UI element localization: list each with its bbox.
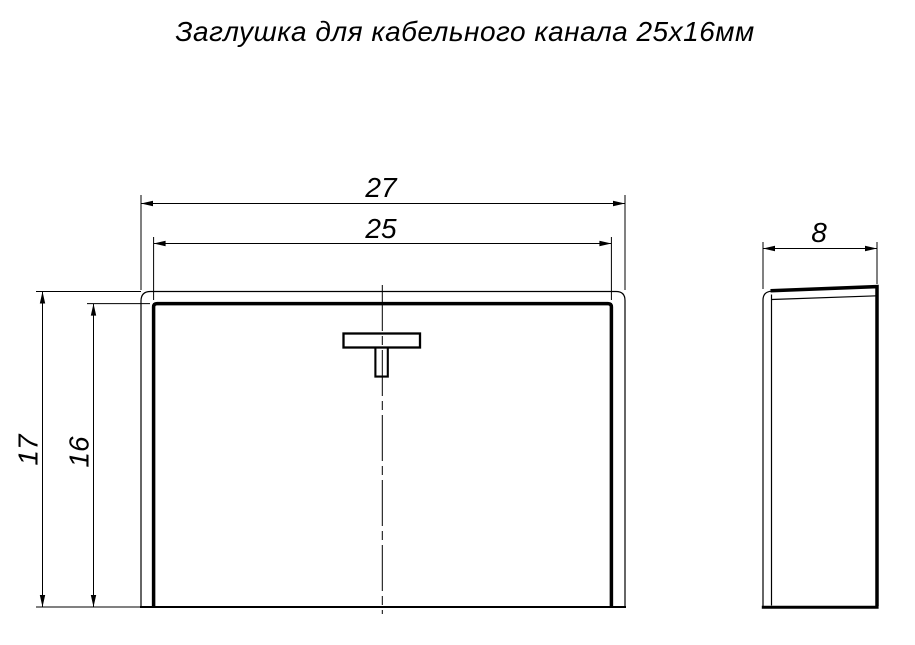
technical-drawing-canvas: 27 25 17 16 [0, 0, 915, 645]
tab-bar [344, 334, 421, 348]
dimension-depth: 8 [763, 217, 877, 289]
front-view [140, 285, 626, 614]
dim25-arrow-right [599, 241, 611, 246]
dim8-arrow-right [865, 246, 877, 251]
dim27-arrow-right [613, 201, 625, 206]
dim17-arrow-top [40, 292, 45, 304]
dim17-arrow-bottom [40, 595, 45, 607]
dim16-arrow-top [91, 304, 96, 316]
dim27-value: 27 [364, 172, 398, 203]
side-inner-top-line [772, 296, 878, 300]
front-latch-tab [344, 334, 421, 377]
side-view [762, 287, 879, 608]
dim8-value: 8 [811, 217, 827, 248]
dim17-value: 17 [13, 433, 44, 466]
drawing-title: Заглушка для кабельного канала 25х16мм [175, 16, 754, 47]
dim16-value: 16 [64, 436, 95, 468]
side-top-right-outline [771, 287, 878, 606]
drawing-sheet: 27 25 17 16 [0, 0, 915, 645]
dim27-arrow-left [141, 201, 153, 206]
dimension-inner-height: 16 [64, 304, 151, 607]
side-left-edge [763, 291, 772, 607]
dim16-arrow-bottom [91, 595, 96, 607]
dim8-arrow-left [763, 246, 775, 251]
tab-stem [375, 346, 387, 377]
dim25-arrow-left [154, 241, 166, 246]
dim25-value: 25 [364, 213, 397, 244]
